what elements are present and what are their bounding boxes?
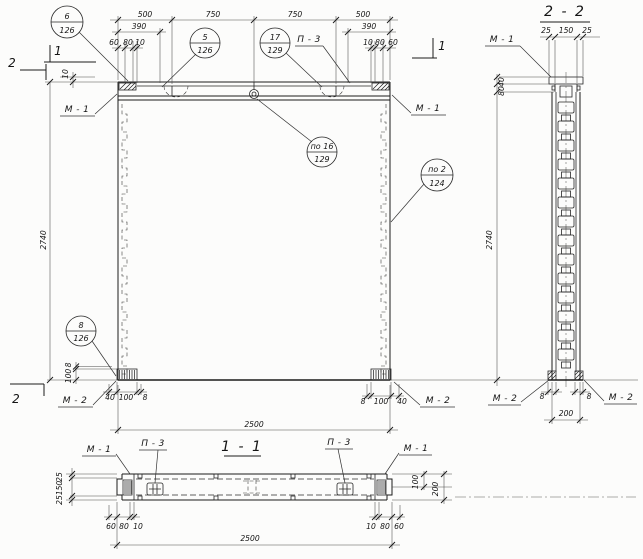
m2-text-22-right: М - 2 xyxy=(609,393,633,403)
dim-11-10-left: 10 xyxy=(133,522,143,531)
label-p3-elevation: П - 3 xyxy=(295,35,350,83)
section-2-2-base-pads xyxy=(548,371,583,380)
balloon-6-num: 6 xyxy=(64,12,69,21)
label-m1-section11-left: М - 1 xyxy=(82,445,130,474)
dim-10-right: 10 xyxy=(363,38,373,47)
dim-22-2740: 2740 xyxy=(485,230,494,249)
p3-text-11-right: П - 3 xyxy=(327,438,350,448)
dim-390-left: 390 xyxy=(132,22,147,31)
dim-11-25-bottom: 25 xyxy=(55,495,64,505)
balloon-po16-sheet: 129 xyxy=(314,155,329,164)
label-m1-section11-right: М - 1 xyxy=(385,444,432,474)
keyed-edge-left xyxy=(122,104,127,374)
dim-22-200: 200 xyxy=(559,409,574,418)
dim-11-200: 200 xyxy=(431,482,440,497)
section-1-1-anchor-right xyxy=(377,480,386,495)
balloon-5-sheet: 126 xyxy=(197,46,212,55)
m1-text-11-right: М - 1 xyxy=(404,444,428,454)
elevation-view xyxy=(47,82,638,380)
channel-insert-right xyxy=(337,483,353,495)
dim-pad-left-40: 40 xyxy=(105,393,115,402)
m1-text-el-right: М - 1 xyxy=(416,104,440,114)
dim-11-2500: 2500 xyxy=(240,534,259,543)
label-m1-elevation-right: М - 1 xyxy=(392,95,446,115)
section-1-1-anchor-left xyxy=(123,480,132,495)
blueprint-page: 500 750 750 500 390 390 60 80 10 10 80 6… xyxy=(0,0,643,559)
dim-22-80: 80 xyxy=(497,86,506,96)
dim-11-150: 150 xyxy=(55,481,64,496)
keyed-edge-right xyxy=(381,104,386,374)
section-2-2-view: 2 - 2 xyxy=(485,4,637,424)
dim-pad-8-vert: 8 xyxy=(64,362,73,367)
edge-notches xyxy=(138,474,371,500)
dim-390-right: 390 xyxy=(362,22,377,31)
dim-60-left: 60 xyxy=(109,38,119,47)
balloon-6-sheet: 126 xyxy=(59,26,74,35)
dim-60-right: 60 xyxy=(388,38,398,47)
dim-pad-left-100: 100 xyxy=(119,393,134,402)
p3-text-el: П - 3 xyxy=(297,35,320,45)
cut-1-left-label: 1 xyxy=(54,44,62,58)
cut-2-bottom-label: 2 xyxy=(12,392,20,406)
balloon-po2-num: по 2 xyxy=(428,165,446,174)
dim-pad-100-vert: 100 xyxy=(64,369,73,384)
balloon-po16-num: по 16 xyxy=(311,142,334,151)
dim-11-25-top: 25 xyxy=(55,472,64,482)
dim-11-100: 100 xyxy=(411,475,420,490)
balloon-po2-sheet: 124 xyxy=(429,179,444,188)
dim-top-500-left: 500 xyxy=(138,10,153,19)
centre-web xyxy=(243,480,261,494)
label-m1-section22: М - 1 xyxy=(485,35,551,77)
dim-11-10-right: 10 xyxy=(366,522,376,531)
dim-pad-left-8: 8 xyxy=(143,393,148,402)
p3-text-11-left: П - 3 xyxy=(141,439,164,449)
dim-22-150: 150 xyxy=(559,26,574,35)
label-p3-section11-right: П - 3 xyxy=(325,438,353,483)
m2-text-22-left: М - 2 xyxy=(493,394,517,404)
section-1-1-view: 1 - 1 xyxy=(55,438,636,549)
balloon-8-num: 8 xyxy=(78,321,83,330)
dim-10-left: 10 xyxy=(135,38,145,47)
dim-top-500-right: 500 xyxy=(356,10,371,19)
dim-height-2740: 2740 xyxy=(39,230,48,249)
m2-text-el-right: М - 2 xyxy=(426,396,450,406)
core-lines xyxy=(136,479,374,495)
cut-marker-2-bottom: 2 xyxy=(10,384,44,406)
dim-11-80-right: 80 xyxy=(380,522,390,531)
balloon-8-126: 8 126 xyxy=(66,316,116,376)
anchor-plate-right xyxy=(372,83,389,90)
dim-22-40: 40 xyxy=(497,77,506,87)
dim-top-750-left: 750 xyxy=(206,10,221,19)
balloon-17-num: 17 xyxy=(270,33,281,42)
balloon-po16-129: по 16 129 xyxy=(257,99,337,167)
cut-1-right-label: 1 xyxy=(438,39,446,53)
dim-pad-right-40: 40 xyxy=(397,397,407,406)
label-m2-section22-right: М - 2 xyxy=(584,380,637,404)
balloon-5-126: 5 126 xyxy=(162,28,220,87)
cut-marker-1-right: 1 xyxy=(412,38,446,58)
dim-22-25-right: 25 xyxy=(582,26,592,35)
dim-80-right: 80 xyxy=(375,38,385,47)
dim-11-80-left: 80 xyxy=(119,522,129,531)
elevation-dimensions: 500 750 750 500 390 390 60 80 10 10 80 6… xyxy=(39,10,407,434)
dim-22-8-right: 8 xyxy=(587,392,592,401)
dim-22-25-left: 25 xyxy=(541,26,551,35)
section-2-2-title: 2 - 2 xyxy=(544,4,586,20)
dim-11-60-right: 60 xyxy=(394,522,404,531)
dim-pad-right-100: 100 xyxy=(374,397,389,406)
bearing-pad-right xyxy=(371,369,391,380)
balloon-5-num: 5 xyxy=(202,33,207,42)
bearing-pad-left xyxy=(117,369,137,380)
channel-insert-left xyxy=(147,483,163,495)
section-1-1-title: 1 - 1 xyxy=(221,439,263,455)
cut-marker-1-left: 1 xyxy=(44,44,96,62)
balloon-po2-124: по 2 124 xyxy=(391,159,453,222)
label-p3-section11-left: П - 3 xyxy=(139,439,167,483)
m1-text-22: М - 1 xyxy=(490,35,514,45)
cut-marker-2-top: 2 xyxy=(8,56,46,80)
cut-2-top-label: 2 xyxy=(8,56,16,70)
dim-22-8-left: 8 xyxy=(540,392,545,401)
dim-top-750-right: 750 xyxy=(288,10,303,19)
label-m1-elevation-left: М - 1 xyxy=(60,94,117,116)
balloon-8-sheet: 126 xyxy=(73,334,88,343)
anchor-plate-left xyxy=(119,83,136,90)
dim-80-left: 80 xyxy=(123,38,133,47)
dim-width-2500: 2500 xyxy=(244,420,263,429)
balloon-17-sheet: 129 xyxy=(267,46,282,55)
m1-text-el-left: М - 1 xyxy=(65,105,89,115)
dim-pad-right-8: 8 xyxy=(361,397,366,406)
dim-11-60-left: 60 xyxy=(106,522,116,531)
m1-text-11-left: М - 1 xyxy=(87,445,111,455)
m2-text-el-left: М - 2 xyxy=(63,396,87,406)
panel-drawing: 500 750 750 500 390 390 60 80 10 10 80 6… xyxy=(0,0,643,559)
dim-top-gap-10: 10 xyxy=(61,69,70,79)
